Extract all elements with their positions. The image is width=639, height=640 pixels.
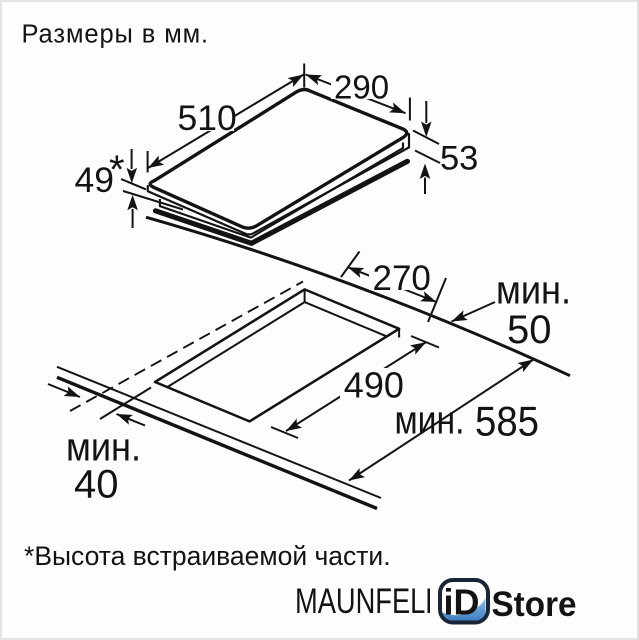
svg-text:270: 270 [373,259,431,298]
svg-text:*Высота встраиваемой части.: *Высота встраиваемой части. [24,541,391,571]
svg-text:53: 53 [440,140,478,178]
svg-text:iD: iD [444,582,480,623]
svg-text:Store: Store [492,585,577,624]
svg-text:40: 40 [74,463,119,507]
svg-text:мин.: мин. [496,269,571,313]
svg-text:510: 510 [178,98,237,138]
svg-text:585: 585 [475,398,539,445]
svg-text:*: * [109,148,125,192]
svg-text:Размеры в мм.: Размеры в мм. [22,21,210,49]
svg-text:290: 290 [334,69,389,106]
svg-text:50: 50 [507,308,552,352]
svg-text:MAUNFELD: MAUNFELD [295,582,445,621]
svg-text:мин.: мин. [395,399,465,443]
